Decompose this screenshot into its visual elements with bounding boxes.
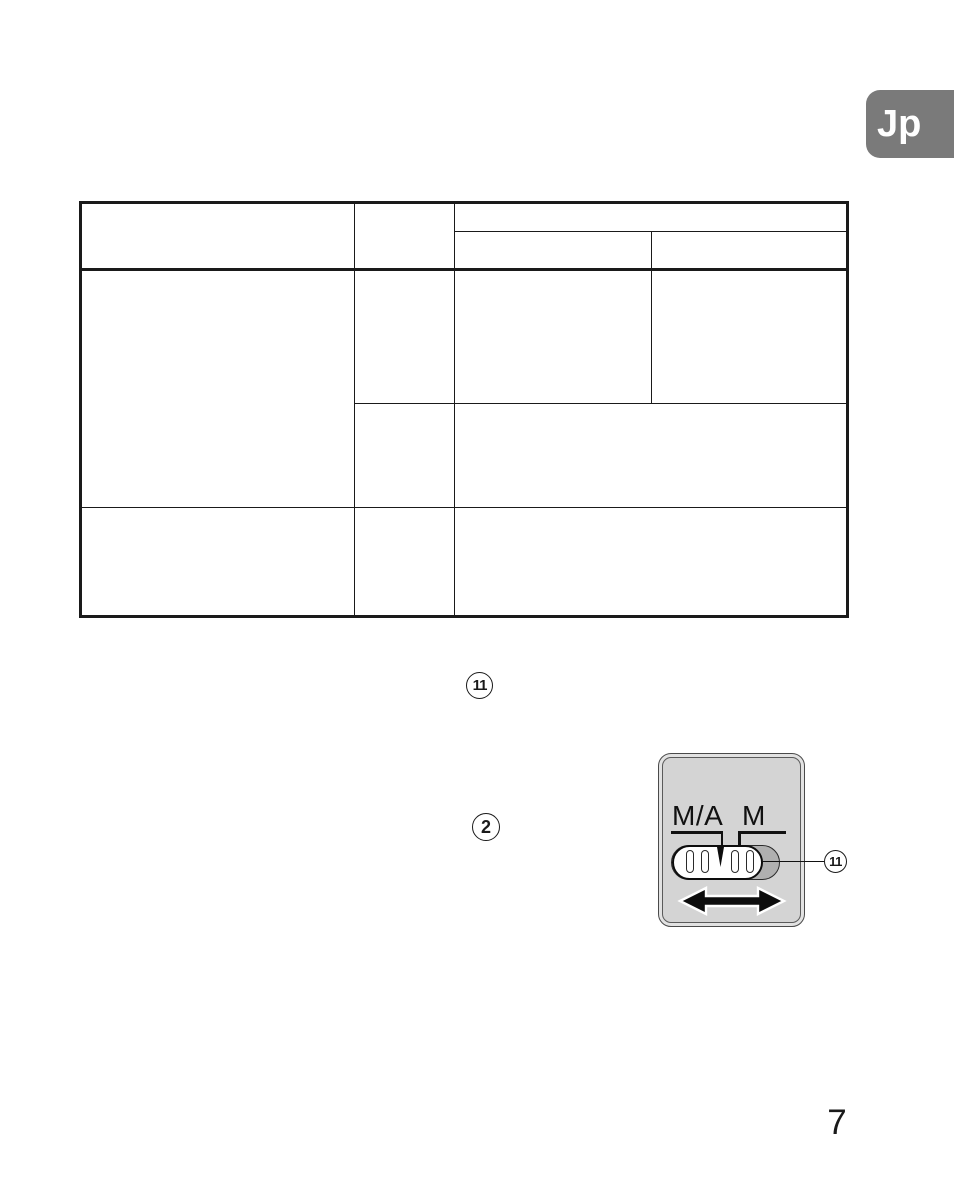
mode-label-m: M bbox=[742, 802, 765, 830]
grip-ridge bbox=[701, 850, 709, 873]
manual-page: Jp bbox=[0, 0, 954, 1183]
table-cell-r2-c2 bbox=[355, 508, 455, 617]
table-cell-r1b-c3c4 bbox=[455, 404, 848, 508]
table-cell-r2-c3c4 bbox=[455, 508, 848, 617]
table-cell-r1-c1 bbox=[81, 270, 355, 508]
table-cell-r1b-c2 bbox=[355, 404, 455, 508]
diagram-callout-11: 11 bbox=[824, 850, 847, 873]
callout-line bbox=[762, 861, 824, 863]
table-cell-r2-c1 bbox=[81, 508, 355, 617]
circled-ref-2: 2 bbox=[472, 813, 500, 841]
language-tab-label: Jp bbox=[866, 105, 921, 143]
table-cell-r1a-c4 bbox=[652, 270, 848, 404]
table-cell-header-c1 bbox=[81, 203, 355, 270]
language-tab-jp: Jp bbox=[866, 90, 954, 158]
ma-underline bbox=[671, 831, 723, 834]
table-cell-header-c3c4-top bbox=[455, 203, 848, 232]
circled-ref-11: 11 bbox=[466, 672, 493, 699]
grip-ridge bbox=[731, 850, 739, 873]
table-cell-r1a-c2 bbox=[355, 270, 455, 404]
focus-mode-switch bbox=[672, 845, 763, 880]
switch-position-marker bbox=[717, 847, 724, 867]
m-underline bbox=[738, 831, 786, 834]
table-cell-header-c2 bbox=[355, 203, 455, 270]
mode-label-ma: M/A bbox=[672, 802, 723, 830]
table-cell-r1a-c3 bbox=[455, 270, 652, 404]
table-cell-header-c4 bbox=[652, 232, 848, 270]
table-cell-header-c3 bbox=[455, 232, 652, 270]
grip-ridge bbox=[746, 850, 754, 873]
slide-direction-arrow-icon bbox=[677, 884, 787, 918]
spec-table bbox=[79, 201, 849, 618]
page-number: 7 bbox=[822, 1103, 852, 1143]
grip-ridge bbox=[686, 850, 694, 873]
